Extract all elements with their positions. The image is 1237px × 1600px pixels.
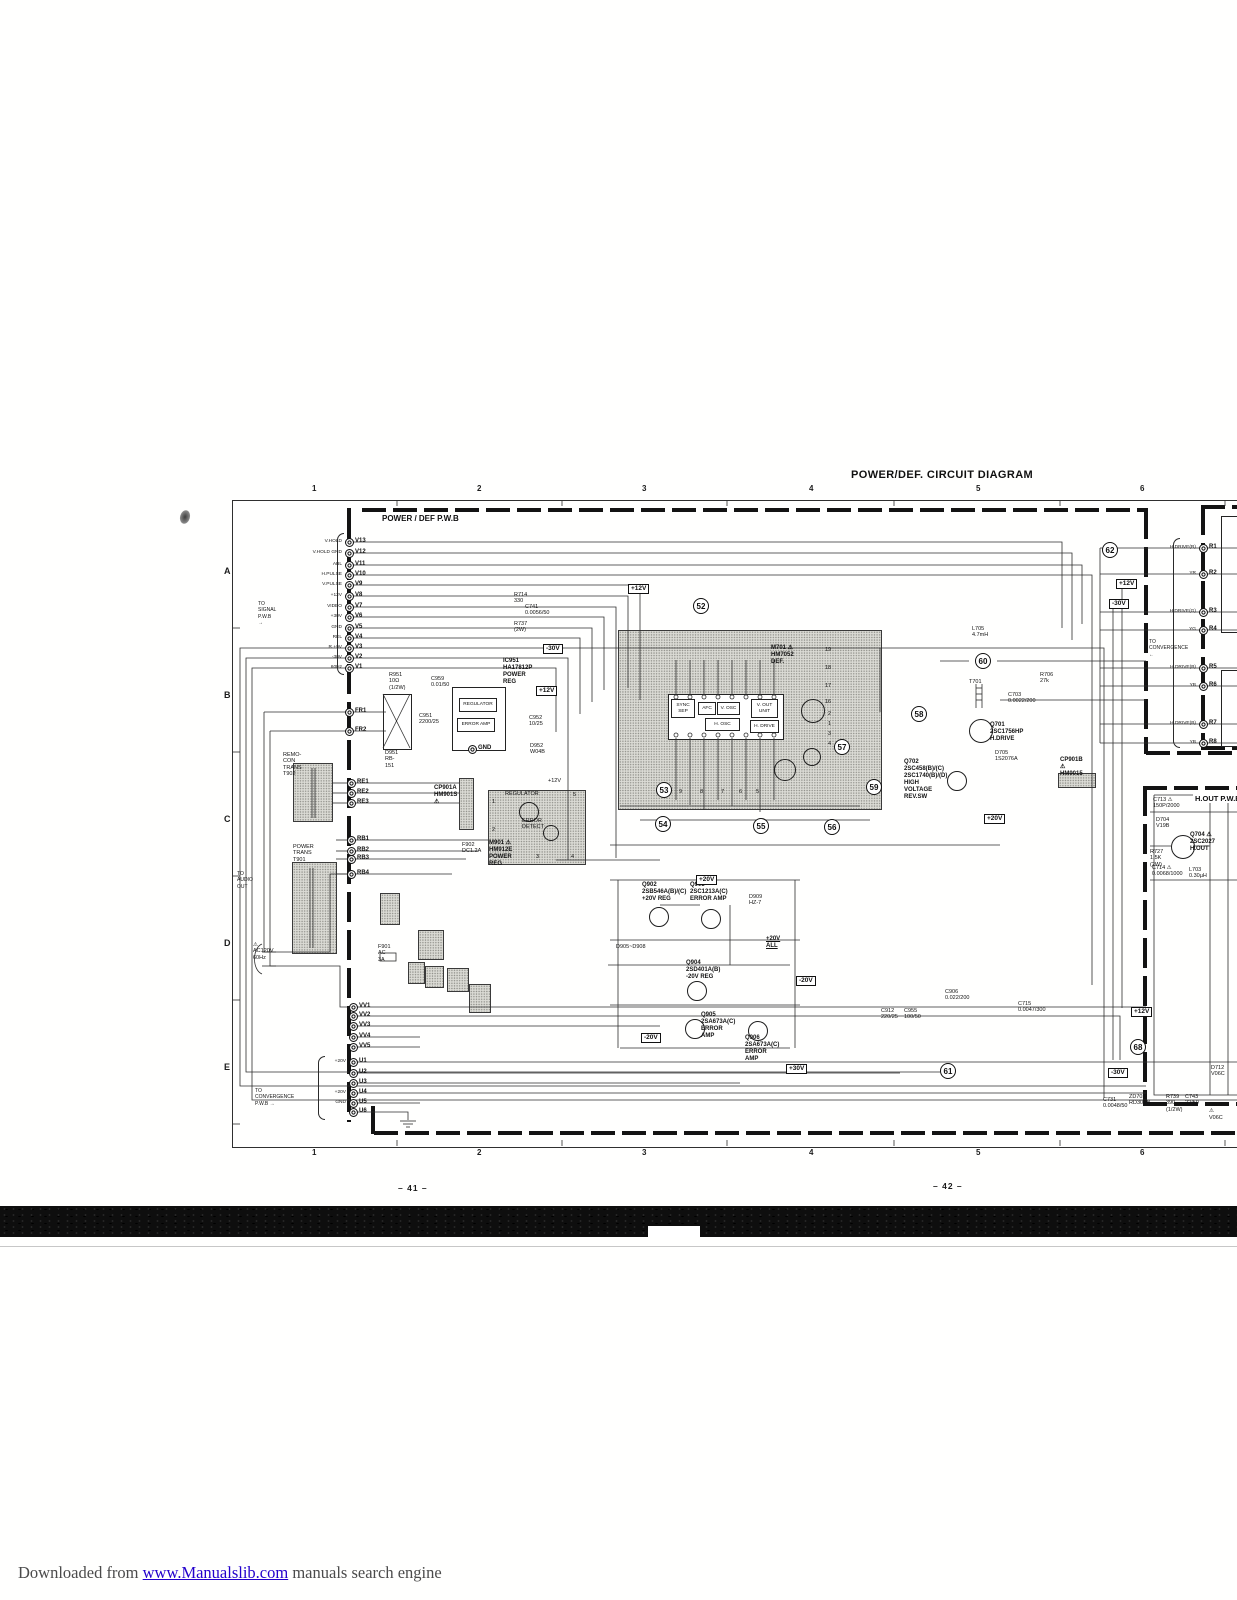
transistor-m701-c xyxy=(774,759,796,781)
voltage-tag: +12V xyxy=(1116,579,1137,589)
pin-V3 xyxy=(345,644,354,653)
component-label: D952 W04B xyxy=(530,743,545,756)
component-label: ZD702 RD30EB xyxy=(1129,1094,1150,1107)
pin-VV5 xyxy=(349,1043,358,1052)
component-label: C741 0.0056/50 xyxy=(525,604,549,617)
pin-name-VV2: VV2 xyxy=(359,1012,370,1018)
pin-RE2 xyxy=(347,789,356,798)
grid-col-bottom-3: 3 xyxy=(642,1148,646,1157)
component-label: C906 0.022/200 xyxy=(945,989,969,1002)
pin-name-RE1: RE1 xyxy=(357,779,369,785)
pin-signal-V12: V.HOLD GND xyxy=(300,550,342,555)
component-label: D951 RB-151 xyxy=(385,750,398,769)
routing-note: TO AUDIO OUT xyxy=(237,871,253,890)
component-label: D909 HZ-7 xyxy=(749,894,762,907)
scanned-manual-page: POWER/DEF. CIRCUIT DIAGRAM xyxy=(0,0,1237,1600)
voltage-tag: -20V xyxy=(796,976,816,986)
pin-R1 xyxy=(1199,544,1208,553)
pin-signal-V10: H.PULSE xyxy=(300,572,342,577)
pin-name-R2: R2 xyxy=(1209,570,1217,576)
component-label: C713 ⚠ 150P/2000 xyxy=(1153,797,1180,810)
pin-name-RB4: RB4 xyxy=(357,870,369,876)
component-label: C715 0.0047/300 xyxy=(1018,1001,1046,1014)
pin-name-R8: R8 xyxy=(1209,739,1217,745)
component-label: ⚠ AC120V 60Hz xyxy=(253,942,274,961)
component-label: CP901B ⚠ HM9015 xyxy=(1060,757,1083,778)
scan-gray-line xyxy=(0,1246,1237,1247)
circled-ref-58: 58 xyxy=(911,706,927,722)
circled-ref-55: 55 xyxy=(753,818,769,834)
component-label: 7 xyxy=(721,789,724,795)
pin-V5 xyxy=(345,624,354,633)
voltage-tag: -30V xyxy=(1108,1068,1128,1078)
pin-signal-V1: 60Hz xyxy=(300,665,342,670)
component-label: 4 xyxy=(571,854,574,860)
pin-V1 xyxy=(345,664,354,673)
function-box: H. OSC xyxy=(705,718,740,731)
component-label: C959 0.01/50 xyxy=(431,676,449,689)
circled-ref-52: 52 xyxy=(693,598,709,614)
circled-ref-62: 62 xyxy=(1102,542,1118,558)
component-label: 1 xyxy=(492,799,495,805)
footer-suffix: manuals search engine xyxy=(288,1563,441,1582)
pin-name-U5: U5 xyxy=(359,1099,367,1105)
function-box: ERROR AMP xyxy=(457,718,495,732)
component-label: 5 xyxy=(756,789,759,795)
circled-ref-57: 57 xyxy=(834,739,850,755)
pin-name-V11: V11 xyxy=(355,561,365,567)
component-label: +20V ALL xyxy=(766,936,780,950)
pin-VV4 xyxy=(349,1033,358,1042)
pin-signal-U4: +20V xyxy=(304,1090,346,1095)
grid-row-B: B xyxy=(224,690,231,700)
voltage-tag: +12V xyxy=(628,584,649,594)
pin-V4 xyxy=(345,634,354,643)
component-label: POWER TRANS T901 xyxy=(293,844,314,863)
component-label: C731 0.0048/50 xyxy=(1103,1097,1127,1110)
pin-U2 xyxy=(349,1069,358,1078)
component-label: T701 xyxy=(969,679,982,685)
component-label: 4 xyxy=(828,741,831,747)
component-label: 1 xyxy=(828,721,831,727)
routing-note: TO SIGNAL P.W.B → xyxy=(258,601,276,626)
grid-row-A: A xyxy=(224,566,231,576)
scan-bar-notch xyxy=(648,1226,700,1237)
component-label: 8 xyxy=(700,789,703,795)
pin-name-VV5: VV5 xyxy=(359,1043,370,1049)
grid-col-bottom-1: 1 xyxy=(312,1148,316,1157)
transistor-q903 xyxy=(701,909,721,929)
pin-U1 xyxy=(349,1058,358,1067)
component-label: L703 0.30µH xyxy=(1189,867,1207,880)
component-label: C952 10/25 xyxy=(529,715,543,728)
component-label: M901 ⚠ HM912E POWER REG xyxy=(489,840,512,868)
pin-name-V7: V7 xyxy=(355,603,362,609)
voltage-tag: -30V xyxy=(1109,599,1129,609)
grid-col-top-4: 4 xyxy=(809,484,813,493)
component-label: Q701 2SC1756HP H.DRIVE xyxy=(990,722,1023,743)
pin-V11 xyxy=(345,561,354,570)
pin-R4 xyxy=(1199,626,1208,635)
transistor-m701-a xyxy=(801,699,825,723)
component-label: 17 xyxy=(825,683,831,689)
pin-name-FR2: FR2 xyxy=(355,727,366,733)
component-label: R951 10Ω (1/2W) xyxy=(389,672,406,691)
component-label: IC951 HA17812P POWER REG xyxy=(503,658,532,686)
circled-ref-68: 68 xyxy=(1130,1039,1146,1055)
pin-RB3 xyxy=(347,855,356,864)
component-label: +12V xyxy=(548,778,561,784)
component-label: Q702 2SC458(B)/(C) 2SC1740(B)/(D) HIGH V… xyxy=(904,759,947,801)
pin-name-R1: R1 xyxy=(1209,544,1217,550)
component-label: R706 27k xyxy=(1040,672,1053,685)
pin-signal-V4: REL xyxy=(300,635,342,640)
pin-name-V10: V10 xyxy=(355,571,366,577)
pin-signal-V3: R.+9V xyxy=(300,645,342,650)
pin-name-V5: V5 xyxy=(355,624,362,630)
routing-note: TO CONVERGENCE P.W.B → xyxy=(255,1088,294,1107)
pin-V9 xyxy=(345,581,354,590)
voltage-tag: +20V xyxy=(696,875,717,885)
voltage-tag: +20V xyxy=(984,814,1005,824)
hout-board-label: H.OUT P.W.B xyxy=(1193,794,1237,803)
voltage-tag: -30V xyxy=(543,644,563,654)
grid-col-top-5: 5 xyxy=(976,484,980,493)
component-label: 3 xyxy=(828,731,831,737)
component-label: D712 V06C xyxy=(1211,1065,1225,1078)
pin-name-V12: V12 xyxy=(355,549,366,555)
pin-name-FR1: FR1 xyxy=(355,708,366,714)
grid-col-bottom-5: 5 xyxy=(976,1148,980,1157)
circled-ref-61: 61 xyxy=(940,1063,956,1079)
component-label: 16 xyxy=(825,699,831,705)
component-label: CP901A HM901S ⚠ xyxy=(434,785,457,806)
voltage-tag: +12V xyxy=(536,686,557,696)
component-label: 5 xyxy=(573,792,576,798)
pin-signal-R8: YB xyxy=(1154,740,1196,745)
pin-V6 xyxy=(345,613,354,622)
component-label: Q906 2SA673A(C) ERROR AMP xyxy=(745,1035,779,1063)
pin-FR1 xyxy=(345,708,354,717)
component-label: 19 xyxy=(825,647,831,653)
grid-col-top-6: 6 xyxy=(1140,484,1144,493)
pin-name-GND: GND xyxy=(478,745,491,751)
pin-U3 xyxy=(349,1079,358,1088)
circled-ref-54: 54 xyxy=(655,816,671,832)
pin-V13 xyxy=(345,538,354,547)
circled-ref-56: 56 xyxy=(824,819,840,835)
component-label: F902 DC1.2A xyxy=(462,842,481,855)
pin-name-R7: R7 xyxy=(1209,720,1217,726)
grid-row-D: D xyxy=(224,938,231,948)
pin-signal-R7: H.DRIVE(B) xyxy=(1154,721,1196,726)
function-box: REGULATOR xyxy=(459,698,497,712)
routing-note: TO CONVERGENCE ← xyxy=(1149,639,1188,658)
pin-VV1 xyxy=(349,1003,358,1012)
component-label: C912 220/25 xyxy=(881,1008,898,1021)
component-label: Q903 2SC1213A(C) ERROR AMP xyxy=(690,882,728,903)
pin-RB1 xyxy=(347,836,356,845)
component-label: 3 xyxy=(536,854,539,860)
component-label: R737 (2W) xyxy=(514,621,527,634)
function-box: H. DRIVE xyxy=(750,720,779,733)
pin-U4 xyxy=(349,1089,358,1098)
voltage-tag: -20V xyxy=(641,1033,661,1043)
component-label: Q704 ⚠ 2SC2027 H.OUT xyxy=(1190,832,1215,853)
page-number-left: – 41 – xyxy=(398,1183,428,1193)
footer-prefix: Downloaded from xyxy=(18,1563,143,1582)
component-label: REGULATOR xyxy=(505,791,539,797)
pin-signal-R4: YG xyxy=(1154,627,1196,632)
wires-layer xyxy=(0,0,1237,1600)
pin-name-U6: U6 xyxy=(359,1108,367,1114)
voltage-tag: +12V xyxy=(1131,1007,1152,1017)
manualslib-link[interactable]: www.Manualslib.com xyxy=(143,1563,289,1582)
pin-V7 xyxy=(345,603,354,612)
pin-U6 xyxy=(349,1108,358,1117)
pin-R7 xyxy=(1199,720,1208,729)
pin-name-V4: V4 xyxy=(355,634,362,640)
pin-name-R5: R5 xyxy=(1209,664,1217,670)
pin-RE1 xyxy=(347,779,356,788)
component-label: Q902 2SB546A(B)/(C) +20V REG xyxy=(642,882,686,903)
pin-name-R3: R3 xyxy=(1209,608,1217,614)
pin-signal-U5: GND xyxy=(304,1100,346,1105)
manualslib-footer: Downloaded from www.Manualslib.com manua… xyxy=(18,1563,442,1583)
pin-signal-R3: H.DRIVE(G) xyxy=(1154,609,1196,614)
component-label: Q905 2SA673A(C) ERROR AMP xyxy=(701,1012,735,1040)
component-label: C955 100/50 xyxy=(904,1008,921,1021)
pin-signal-R5: H.DRIVE(B) xyxy=(1154,665,1196,670)
pin-name-U2: U2 xyxy=(359,1069,367,1075)
pin-R8 xyxy=(1199,739,1208,748)
pin-V2 xyxy=(345,654,354,663)
pin-name-V8: V8 xyxy=(355,592,362,598)
page-number-right: – 42 – xyxy=(933,1181,963,1191)
circled-ref-53: 53 xyxy=(656,782,672,798)
pin-name-RB3: RB3 xyxy=(357,855,369,861)
pin-name-RB1: RB1 xyxy=(357,836,369,842)
pin-VV2 xyxy=(349,1012,358,1021)
component-label: M701 ⚠ HM7052 DEF. xyxy=(771,645,794,666)
component-label: D704 V19B xyxy=(1156,817,1169,830)
grid-row-E: E xyxy=(224,1062,230,1072)
component-label: R739 390 (1/2W) xyxy=(1166,1094,1183,1113)
grid-row-C: C xyxy=(224,814,231,824)
function-box: AFC xyxy=(698,702,716,715)
component-label: D705 1S2076A xyxy=(995,750,1018,763)
function-box: V. OUT UNIT xyxy=(751,699,778,718)
pin-V8 xyxy=(345,592,354,601)
pin-signal-V13: V.HOLD xyxy=(300,539,342,544)
component-label: REMO-CON TRANS T902 xyxy=(283,752,302,778)
pin-name-RE2: RE2 xyxy=(357,789,369,795)
component-label: L705 4.7mH xyxy=(972,626,988,639)
transistor-q702 xyxy=(947,771,967,791)
component-label: Q904 2SD401A(B) -20V REG xyxy=(686,960,720,981)
pin-V12 xyxy=(345,549,354,558)
component-label: C714 ⚠ 0.0068/1000 xyxy=(1152,865,1183,878)
pin-name-V2: V2 xyxy=(355,654,362,660)
circled-ref-59: 59 xyxy=(866,779,882,795)
pin-name-U3: U3 xyxy=(359,1079,367,1085)
grid-col-top-2: 2 xyxy=(477,484,481,493)
pin-signal-V5: GND xyxy=(300,625,342,630)
pin-signal-R2: YR xyxy=(1154,571,1196,576)
function-box: SYNC SEP xyxy=(671,699,695,718)
main-board-label: POWER / DEF P.W.B xyxy=(380,514,461,523)
pin-name-V9: V9 xyxy=(355,581,362,587)
pin-name-U1: U1 xyxy=(359,1058,367,1064)
pin-GND xyxy=(468,745,477,754)
scan-black-bar xyxy=(0,1206,1237,1237)
pin-VV3 xyxy=(349,1022,358,1031)
transistor-m901-det xyxy=(543,825,559,841)
pin-name-VV3: VV3 xyxy=(359,1022,370,1028)
pin-R6 xyxy=(1199,682,1208,691)
pin-name-V6: V6 xyxy=(355,613,362,619)
voltage-tag: +30V xyxy=(786,1064,807,1074)
transistor-m701-b xyxy=(803,748,821,766)
pin-signal-V7: VIDEO xyxy=(300,604,342,609)
pin-signal-V11: ABL xyxy=(300,562,342,567)
pin-name-U4: U4 xyxy=(359,1089,367,1095)
component-label: C743 22/50 xyxy=(1185,1094,1199,1107)
pin-signal-V2: -30V xyxy=(300,655,342,660)
pin-name-V1: V1 xyxy=(355,664,362,670)
pin-signal-V9: V.PULSE xyxy=(300,582,342,587)
pin-signal-R1: H.DRIVE(R) xyxy=(1154,545,1196,550)
component-label: D708 ⚠ V06C xyxy=(1209,1102,1223,1121)
grid-col-bottom-6: 6 xyxy=(1140,1148,1144,1157)
component-label: C703 0.0022/200 xyxy=(1008,692,1036,705)
pin-signal-V8: +12V xyxy=(300,593,342,598)
pin-name-RE3: RE3 xyxy=(357,799,369,805)
grid-col-top-1: 1 xyxy=(312,484,316,493)
component-label: C951 2200/25 xyxy=(419,713,439,726)
pin-name-VV4: VV4 xyxy=(359,1033,370,1039)
component-label: D905~D908 xyxy=(616,944,646,950)
transistor-q902 xyxy=(649,907,669,927)
component-label: 2 xyxy=(492,827,495,833)
pin-signal-V6: +30V xyxy=(300,614,342,619)
pin-signal-R6: YB xyxy=(1154,683,1196,688)
component-label: 2 xyxy=(828,711,831,717)
pin-name-R4: R4 xyxy=(1209,626,1217,632)
pin-R3 xyxy=(1199,608,1208,617)
pin-RB4 xyxy=(347,870,356,879)
pin-name-R6: R6 xyxy=(1209,682,1217,688)
pin-name-VV1: VV1 xyxy=(359,1003,370,1009)
convergence-pin-brace xyxy=(318,1056,325,1120)
transistor-q904 xyxy=(687,981,707,1001)
component-label: 18 xyxy=(825,665,831,671)
component-label: F901 AC 3A xyxy=(378,944,391,963)
component-label: ERROR DETECT xyxy=(522,818,544,831)
component-label: 9 xyxy=(679,789,682,795)
pin-signal-U1: +20V xyxy=(304,1059,346,1064)
component-label: 6 xyxy=(739,789,742,795)
function-box: V. OSC xyxy=(717,702,740,715)
pin-U5 xyxy=(349,1099,358,1108)
grid-col-top-3: 3 xyxy=(642,484,646,493)
grid-col-bottom-4: 4 xyxy=(809,1148,813,1157)
pin-R5 xyxy=(1199,664,1208,673)
pin-name-V3: V3 xyxy=(355,644,362,650)
pin-R2 xyxy=(1199,570,1208,579)
grid-col-bottom-2: 2 xyxy=(477,1148,481,1157)
pin-name-RB2: RB2 xyxy=(357,847,369,853)
pin-FR2 xyxy=(345,727,354,736)
circled-ref-60: 60 xyxy=(975,653,991,669)
pin-RE3 xyxy=(347,799,356,808)
pin-name-V13: V13 xyxy=(355,538,366,544)
pin-V10 xyxy=(345,571,354,580)
